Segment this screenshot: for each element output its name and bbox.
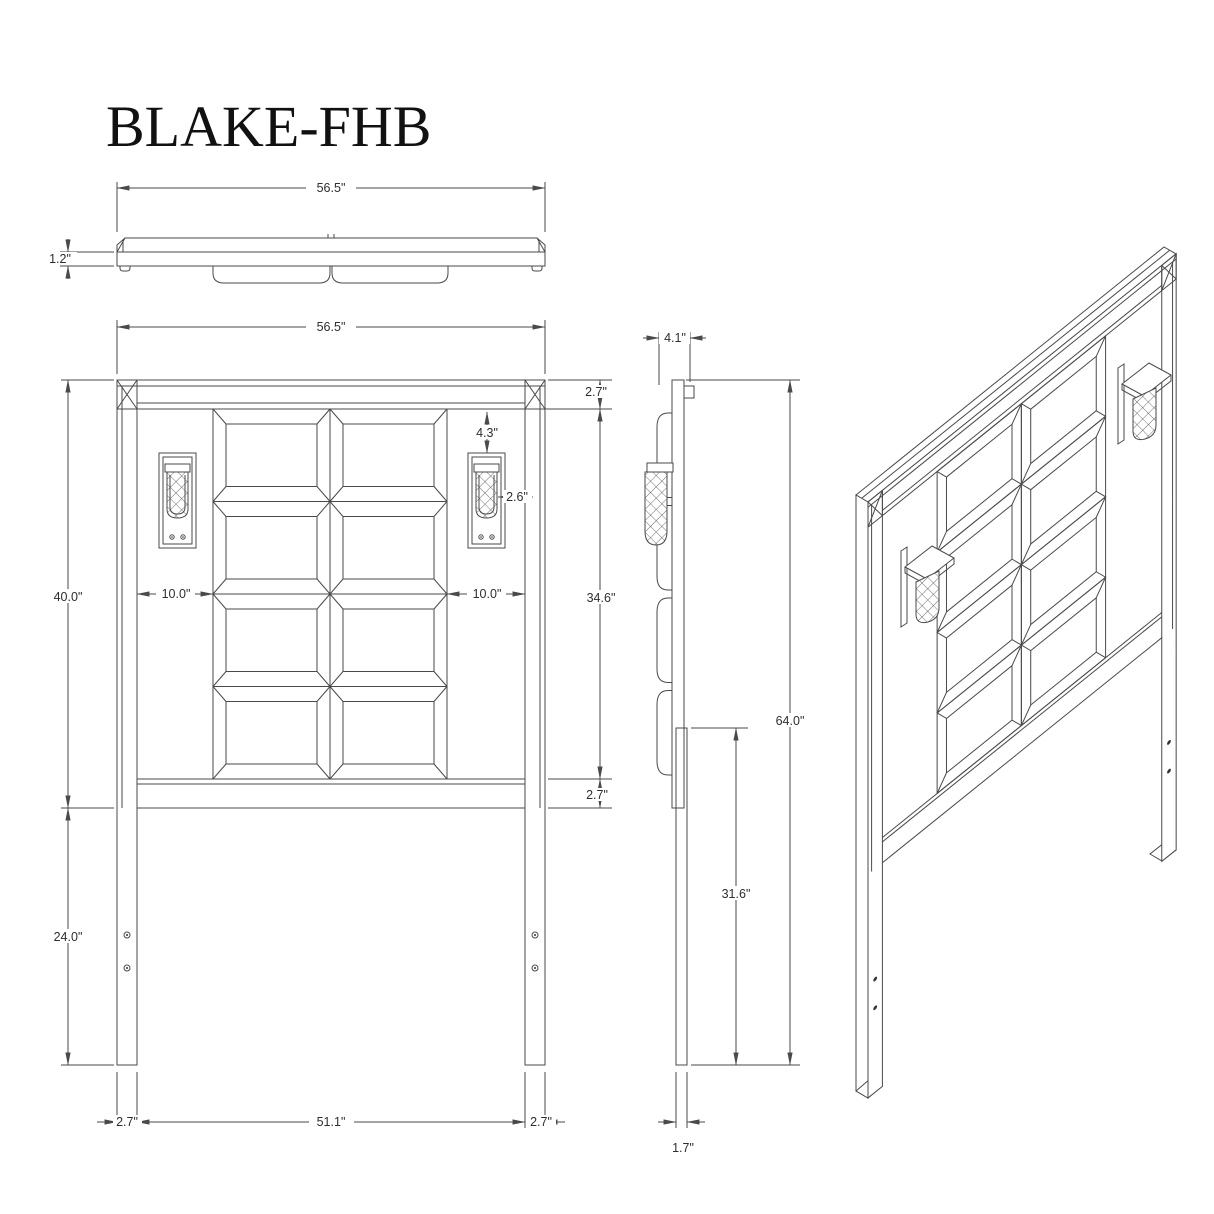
svg-text:56.5": 56.5": [317, 320, 346, 334]
front-view: 56.5" 2.7" 34.6" 2.7" 4.3": [47, 319, 622, 1129]
left-side-face: [856, 495, 868, 1098]
dim-front-leg-right: 2.7": [530, 1115, 552, 1129]
perspective-view: [856, 247, 1176, 1098]
dim-front-top-rail: 2.7": [585, 385, 607, 399]
dim-side-leg-height: 31.6": [691, 728, 758, 1065]
dim-front-inner-span: 51.1": [317, 1115, 346, 1129]
svg-text:56.5": 56.5": [317, 181, 346, 195]
svg-text:1.2": 1.2": [49, 252, 71, 266]
dim-front-bottom-rail: 2.7": [586, 788, 608, 802]
dim-front-leg-left: 2.7": [116, 1115, 138, 1129]
dim-front-opening-height: 34.6": [587, 591, 616, 605]
side-view: 4.1" 64.0" 31.6" 1.7": [643, 331, 812, 1155]
dim-front-leg-exposed: 24.0": [54, 930, 83, 944]
dim-top-thickness: 1.2": [44, 239, 114, 279]
dim-front-left-chain: 40.0" 24.0": [47, 380, 114, 1065]
dim-front-frame-height: 40.0": [54, 590, 83, 604]
dim-side-depth: 4.1": [643, 331, 706, 385]
svg-text:10.0": 10.0": [473, 587, 502, 601]
svg-text:1.7": 1.7": [672, 1141, 694, 1155]
dim-side-leg-thickness: 1.7": [658, 1072, 705, 1155]
drawing-sheet: BLAKE-FHB 56.5": [0, 0, 1214, 1214]
svg-text:2.6": 2.6": [506, 490, 528, 504]
svg-text:10.0": 10.0": [162, 587, 191, 601]
dim-top-width: 56.5": [117, 180, 545, 232]
svg-text:31.6": 31.6": [722, 887, 751, 901]
svg-text:4.3": 4.3": [476, 426, 498, 440]
svg-text:64.0": 64.0": [776, 714, 805, 728]
dim-front-width: 56.5": [117, 319, 545, 374]
drawing-title: BLAKE-FHB: [106, 94, 431, 159]
dim-front-bottom-chain: 2.7" 51.1" 2.7": [97, 1072, 565, 1129]
technical-drawing: BLAKE-FHB 56.5": [0, 0, 1214, 1214]
svg-text:4.1": 4.1": [664, 331, 686, 345]
left-sconce: [159, 453, 196, 548]
leg-holes: [124, 932, 538, 971]
top-view: 56.5" 1.2": [44, 180, 545, 283]
side-sconce: [645, 463, 673, 545]
right-sconce: [468, 453, 505, 548]
dim-front-lamp-width: 2.6": [498, 490, 533, 504]
dim-side-total-height: 64.0": [686, 380, 812, 1065]
